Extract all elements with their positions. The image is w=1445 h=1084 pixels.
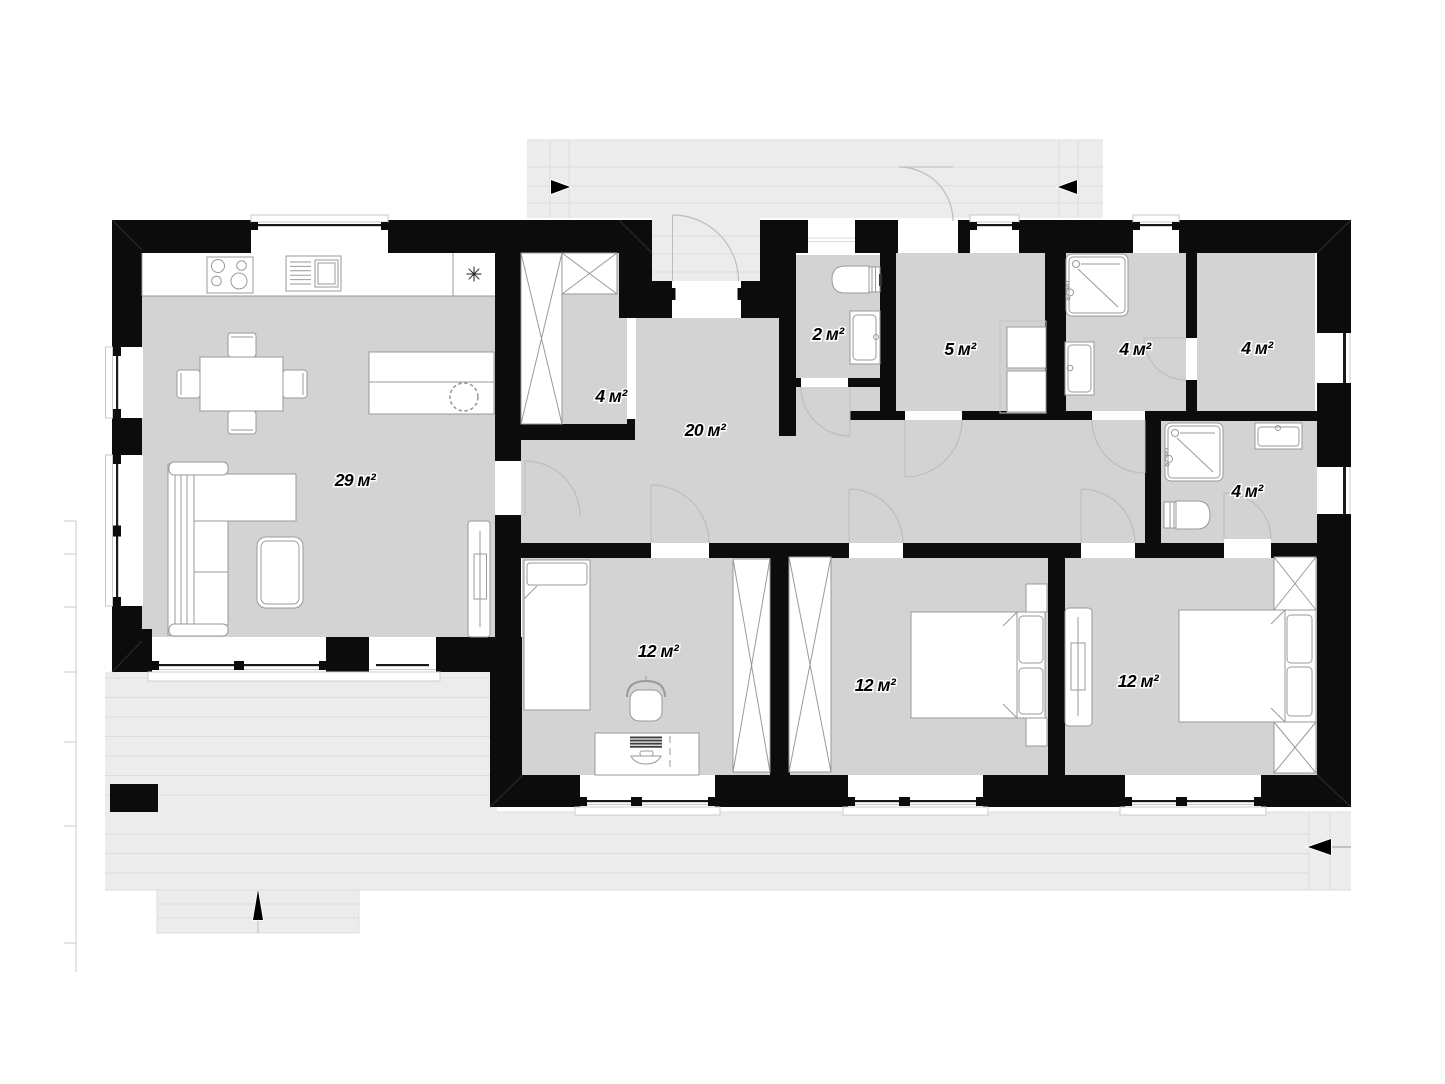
- svg-text:12 м²: 12 м²: [855, 675, 897, 695]
- svg-text:5 м²: 5 м²: [944, 339, 977, 359]
- svg-text:2 м²: 2 м²: [811, 324, 845, 344]
- svg-text:12 м²: 12 м²: [638, 641, 680, 661]
- svg-text:4 м²: 4 м²: [594, 386, 628, 406]
- svg-text:20 м²: 20 м²: [684, 420, 727, 440]
- svg-text:29 м²: 29 м²: [334, 470, 377, 490]
- svg-text:4 м²: 4 м²: [1118, 339, 1152, 359]
- svg-text:4 м²: 4 м²: [1240, 338, 1274, 358]
- svg-text:12 м²: 12 м²: [1118, 671, 1160, 691]
- svg-text:4 м²: 4 м²: [1230, 481, 1264, 501]
